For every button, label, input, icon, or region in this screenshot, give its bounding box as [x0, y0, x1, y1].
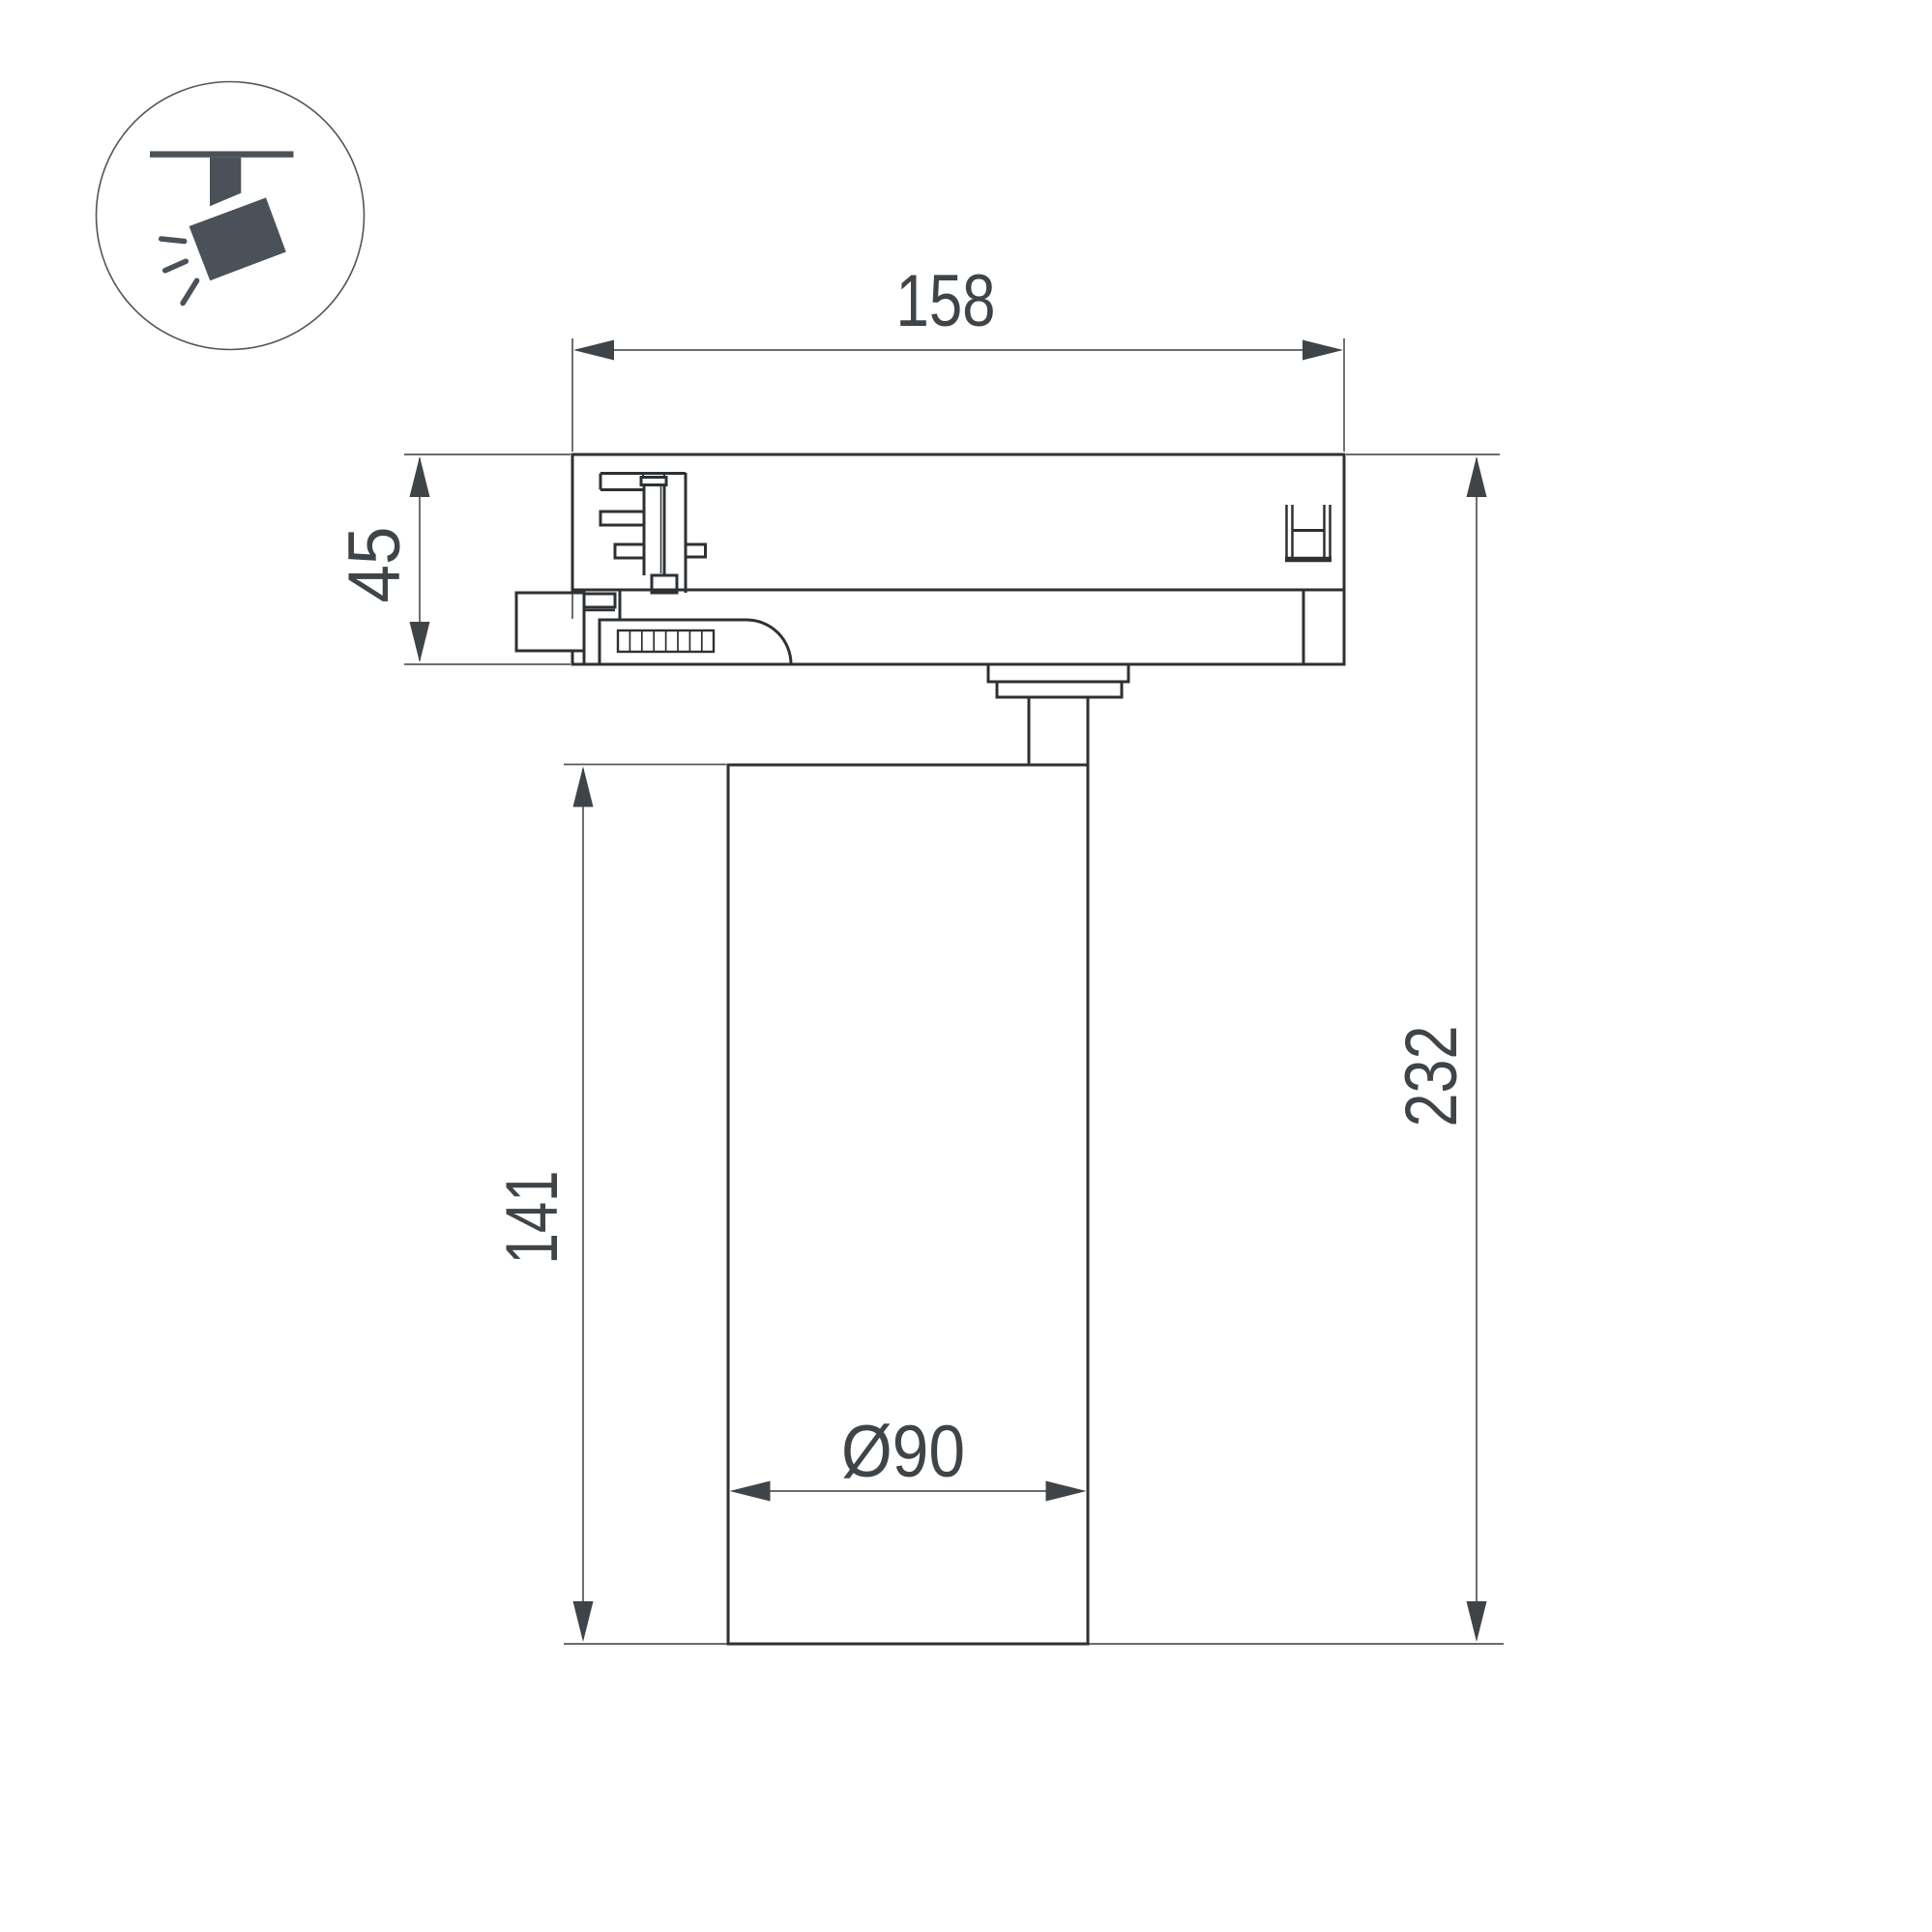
svg-text:158: 158 — [896, 260, 996, 342]
svg-text:141: 141 — [491, 1171, 573, 1265]
svg-text:Ø90: Ø90 — [841, 1411, 965, 1493]
svg-text:232: 232 — [1390, 1026, 1473, 1127]
svg-text:45: 45 — [334, 527, 416, 603]
